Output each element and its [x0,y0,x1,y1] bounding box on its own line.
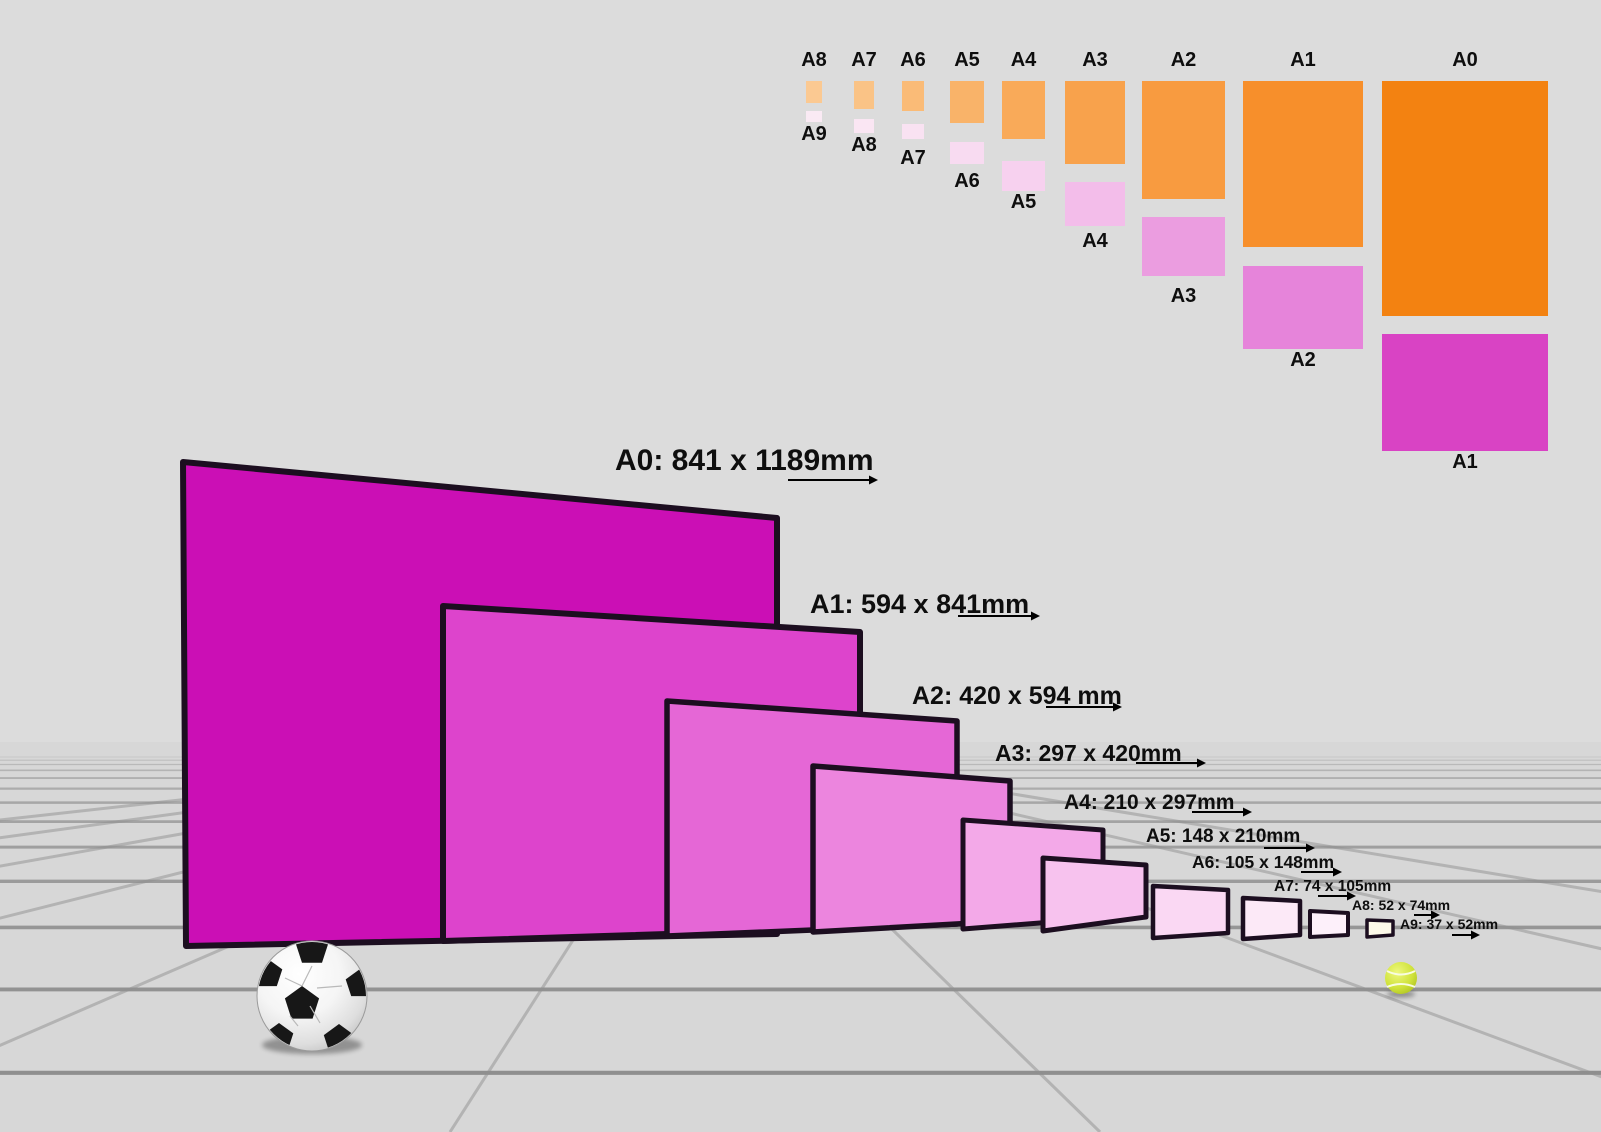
size-chart-landscape-A7 [902,124,924,139]
sheet-label-A2: A2: 420 x 594 mm [912,683,1122,711]
size-chart-landscape-A4 [1065,182,1125,226]
sheet-A8 [1310,911,1348,937]
paper-size-infographic: A0: 841 x 1189mmA1: 594 x 841mmA2: 420 x… [0,0,1601,1132]
sheet-label-A0: A0: 841 x 1189mm [615,444,874,477]
sheet-A9 [1367,920,1393,937]
size-chart-portrait-A0 [1382,81,1548,316]
size-chart-portrait-A3 [1065,81,1125,164]
size-chart-portrait-A4 [1002,81,1045,139]
size-chart-label-A1: A1 [1263,49,1343,72]
sheet-A5 [1043,858,1146,931]
size-chart-sublabel-A3: A3 [1144,285,1224,308]
sheet-label-A9: A9: 37 x 52mm [1400,917,1498,932]
sheet-label-A3: A3: 297 x 420mm [995,741,1182,766]
sheet-label-A8: A8: 52 x 74mm [1352,898,1450,913]
size-chart-portrait-A7 [854,81,874,109]
size-chart-landscape-A2 [1243,266,1363,349]
sheet-A6 [1153,886,1228,938]
size-chart-landscape-A9 [806,111,822,122]
sheet-label-A7: A7: 74 x 105mm [1274,878,1391,895]
size-chart-portrait-A8 [806,81,822,103]
sheet-label-A6: A6: 105 x 148mm [1192,853,1334,872]
size-chart-sublabel-A1: A1 [1425,451,1505,474]
size-chart-label-A0: A0 [1425,49,1505,72]
sheet-label-A5: A5: 148 x 210mm [1146,827,1300,848]
sheet-label-A4: A4: 210 x 297mm [1064,791,1234,814]
size-chart-portrait-A5 [950,81,984,123]
size-chart-label-A2: A2 [1144,49,1224,72]
size-chart-landscape-A3 [1142,217,1225,276]
size-chart-sublabel-A6: A6 [927,170,1007,193]
tennis-ball-icon [1385,962,1417,994]
size-chart-sublabel-A7: A7 [873,147,953,170]
size-chart-sublabel-A5: A5 [984,191,1064,214]
size-chart-sublabel-A4: A4 [1055,230,1135,253]
sheet-label-A1: A1: 594 x 841mm [810,590,1029,620]
sheet-A7 [1243,898,1300,939]
size-chart-portrait-A1 [1243,81,1363,247]
size-chart-portrait-A2 [1142,81,1225,199]
size-chart-sublabel-A2: A2 [1263,349,1343,372]
size-chart-label-A3: A3 [1055,49,1135,72]
size-chart-landscape-A1 [1382,334,1548,451]
size-chart-landscape-A8 [854,119,874,133]
size-chart-landscape-A5 [1002,161,1045,191]
size-chart-label-A4: A4 [984,49,1064,72]
size-chart-landscape-A6 [950,142,984,164]
size-chart-portrait-A6 [902,81,924,111]
